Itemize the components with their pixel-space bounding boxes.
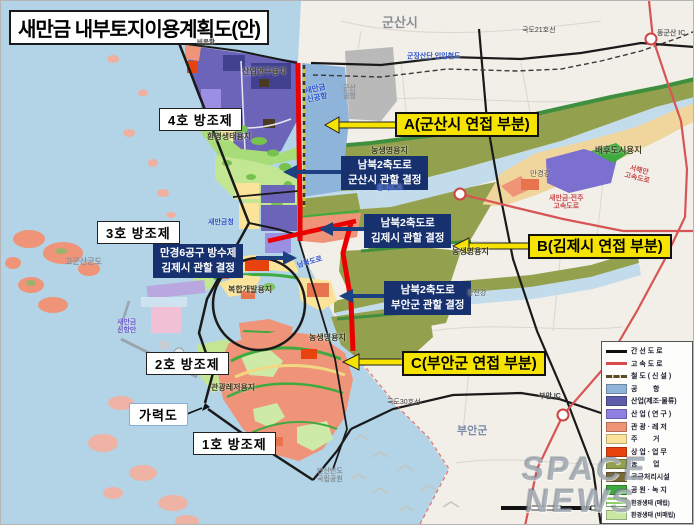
legend-item-industry-logistics: 산업(제조·물류): [606, 395, 689, 407]
legend-item-expressway: 고 속 도 로: [606, 358, 689, 370]
decision-mangyeong: 만경6공구 방수제 김제시 관할 결정: [153, 244, 243, 278]
decision-buan-line2: 부안군 관할 결정: [391, 299, 464, 311]
smg-office-label: 새만금청: [208, 219, 234, 227]
legend-item-industry-research: 산 업 ( 연 구 ): [606, 408, 689, 420]
byeonsan-label: 변산반도 국립공원: [317, 468, 343, 484]
decision-gimje-line2: 김제시 관할 결정: [371, 232, 444, 244]
complex-dev-label: 복합개발용지: [228, 286, 272, 295]
env-eco-label: 환경생태용지: [207, 133, 251, 142]
legend-item-tourism: 관 광 · 레 저: [606, 421, 689, 433]
national-road-30-label: 국도30호선: [387, 399, 421, 407]
watermark-line2: NEWS: [523, 482, 639, 519]
decision-mangyeong-line2: 김제시 관할 결정: [161, 262, 234, 274]
decision-gunsan-line1: 남북2축도로: [358, 159, 412, 171]
seawall-3-label: 3호 방조제: [97, 221, 180, 244]
seawall-1-label: 1호 방조제: [193, 432, 276, 455]
industry-research-swatch: [606, 409, 627, 419]
bieung-port-label: 비응항: [197, 39, 215, 46]
callout-c: C(부안군 연접 부분): [402, 351, 546, 376]
legend-item-arterial: 간 선 도 로: [606, 345, 689, 357]
dongseo-road-label: 동서도로: [377, 185, 403, 193]
decision-buan-line1: 남북2축도로: [401, 284, 455, 296]
decision-gimje: 남북2축도로 김제시 관할 결정: [364, 214, 451, 248]
legend-item-railway: 철 도 ( 신 설 ): [606, 370, 689, 382]
residential-swatch: [606, 434, 627, 444]
garyeok-label: 가력도: [129, 403, 188, 426]
callout-a: A(군산시 연접 부분): [395, 112, 539, 137]
buan-ic-label: 부안 IC: [539, 393, 561, 401]
donggunsan-ic-label: 동군산 IC: [657, 30, 685, 38]
agri-bottom-label: 농생명용지: [309, 334, 346, 343]
industry-logistics-swatch: [606, 396, 627, 406]
national-road-21-label: 국도21호선: [522, 27, 556, 35]
airport-swatch: [606, 384, 627, 394]
mangyeong-river-label: 만경강: [530, 170, 551, 178]
callout-b: B(김제시 연접 부분): [528, 234, 672, 259]
decision-buan: 남북2축도로 부안군 관할 결정: [384, 281, 471, 315]
new-port-label: 새만금 신항만: [117, 319, 136, 335]
gogunsan-label: 고군산군도: [65, 258, 102, 267]
arterial-road-swatch: [606, 350, 627, 353]
tourism-label: 관광레저용지: [211, 384, 255, 393]
gunjang-railway-label: 군장산단 인입철도: [407, 53, 460, 61]
railway-swatch: [606, 375, 627, 378]
seawall-2-label: 2호 방조제: [146, 352, 229, 375]
map-title: 새만금 내부토지이용계획도(안): [9, 10, 269, 45]
legend-item-residential: 주 거: [606, 433, 689, 445]
map-graphic: [1, 1, 694, 525]
watermark: SPACE NEWS: [508, 453, 657, 518]
sj-expwy-label: 새만금-전주 고속도로: [549, 195, 584, 211]
agri-top-label: 농생명용지: [371, 147, 408, 156]
decision-mangyeong-line1: 만경6공구 방수제: [160, 247, 236, 259]
tourism-swatch: [606, 422, 627, 432]
industry-research-label: 산업연구용지: [242, 68, 286, 77]
seawall-4-label: 4호 방조제: [159, 108, 242, 131]
dongjin-river-label: 동진강: [467, 290, 486, 298]
baehu-city-label: 배후도시용지: [595, 146, 642, 155]
legend-item-airport: 공 항: [606, 383, 689, 395]
gunsan-airport-label: 군산 공항: [343, 85, 356, 101]
saemangeum-plan-map: 새만금 내부토지이용계획도(안) 4호 방조제 3호 방조제 2호 방조제 1호…: [0, 0, 694, 525]
agri-mid-label: 농생명용지: [452, 248, 489, 257]
decision-gimje-line1: 남북2축도로: [381, 217, 435, 229]
gunsan-city-label: 군산시: [382, 16, 418, 30]
buan-gun-label: 부안군: [457, 425, 487, 437]
expressway-swatch: [606, 362, 627, 365]
